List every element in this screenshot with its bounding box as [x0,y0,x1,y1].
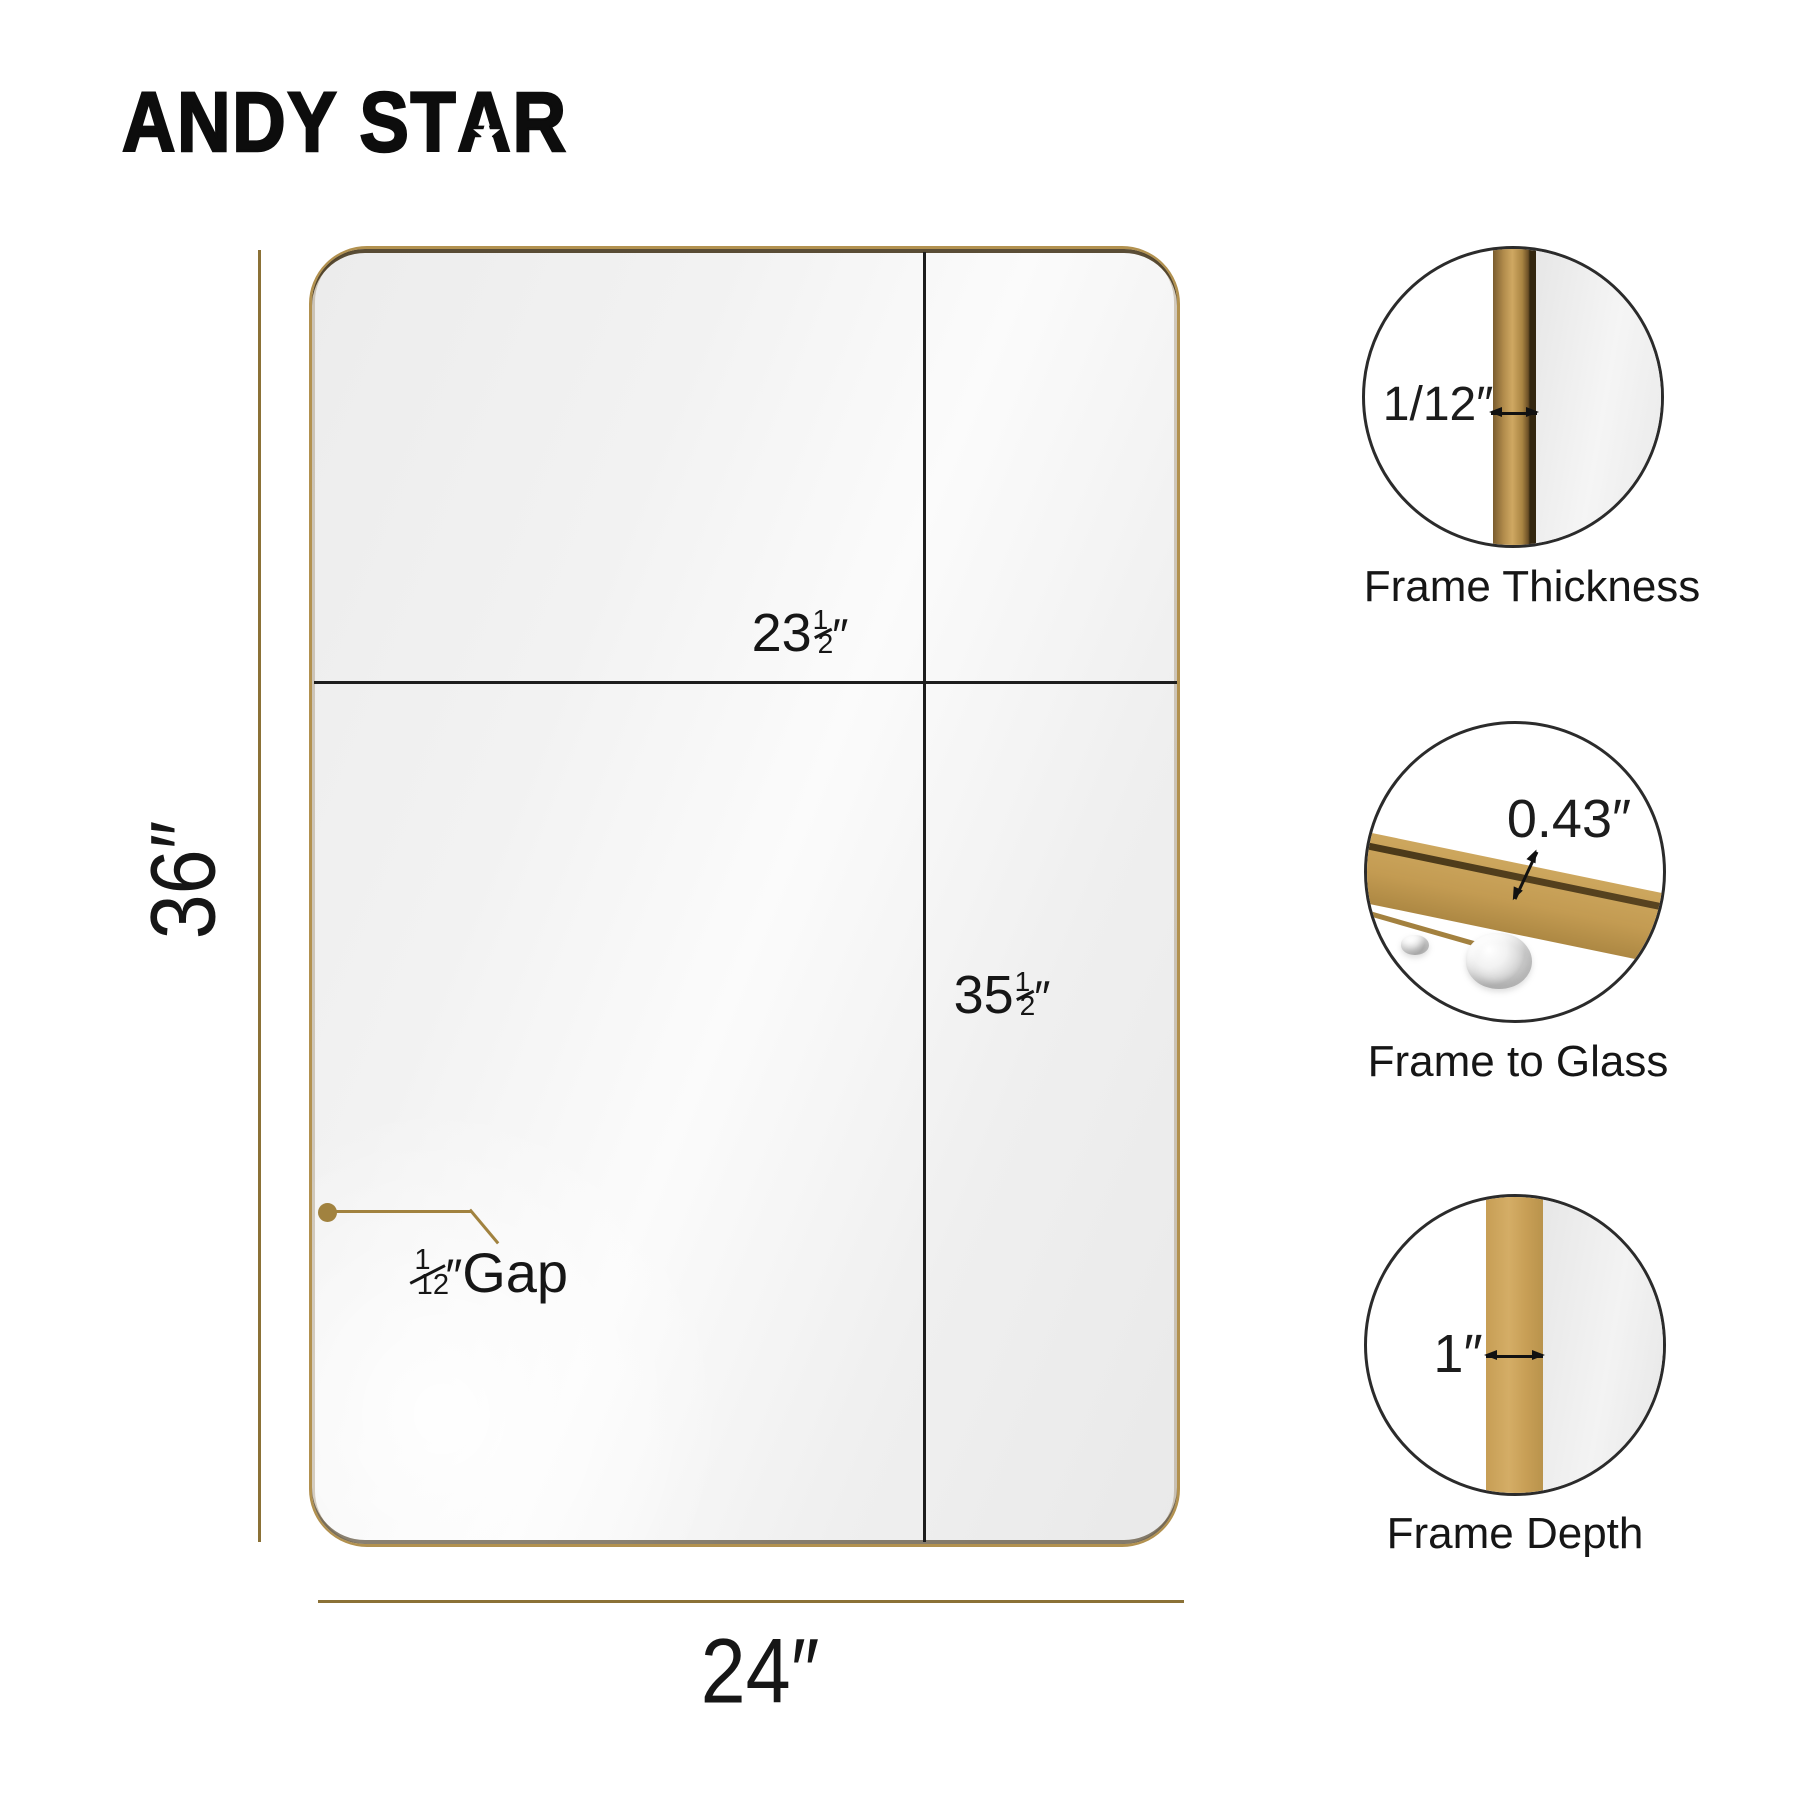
mirror-frame [309,246,1180,1547]
glass-height-label: 3512″ [954,964,1051,1026]
glass-width-measure-line [314,681,1177,684]
width-dimension-label: 24″ [701,1620,820,1725]
brand-logo-star-letter: A★ [457,74,512,171]
half-fraction: 12 [815,608,831,656]
twelfth-fraction: 112 [411,1248,443,1298]
frame-thickness-detail-circle: 1/12″ [1362,246,1664,548]
frame-depth-detail-circle: 1″ [1364,1194,1666,1496]
product-dimension-diagram: ANDY STA★R 36″ 24″ 2312″ 3512″ 112″Gap 1… [0,0,1800,1800]
brand-logo-prefix: ANDY ST [122,75,457,169]
gap-callout-line [327,1210,471,1213]
water-drop-icon [1466,933,1532,989]
height-dimension-line [258,250,261,1542]
glass-width-label: 2312″ [752,602,849,664]
frame-to-glass-value: 0.43″ [1479,788,1659,850]
mirror-glass [312,249,1177,1544]
width-dimension-line [318,1600,1184,1603]
height-dimension-label: 36″ [132,821,237,940]
water-drop-icon [1401,935,1429,955]
star-icon: ★ [471,111,503,157]
glass-height-measure-line [923,252,926,1542]
frame-depth-caption: Frame Depth [1315,1509,1715,1559]
frame-to-glass-caption: Frame to Glass [1318,1037,1718,1087]
double-arrow-icon [1486,1355,1543,1358]
frame-thickness-value: 1/12″ [1365,377,1511,432]
frame-thickness-caption: Frame Thickness [1332,562,1732,612]
glass-section [1533,249,1661,545]
frame-to-glass-detail-circle: 0.43″ [1364,721,1666,1023]
glass-section [1543,1197,1663,1493]
double-arrow-icon [1491,412,1537,415]
half-fraction: 12 [1017,970,1033,1018]
gap-label: 112″Gap [408,1240,568,1305]
brand-logo: ANDY STA★R [122,74,568,171]
brand-logo-suffix: R [513,75,568,169]
